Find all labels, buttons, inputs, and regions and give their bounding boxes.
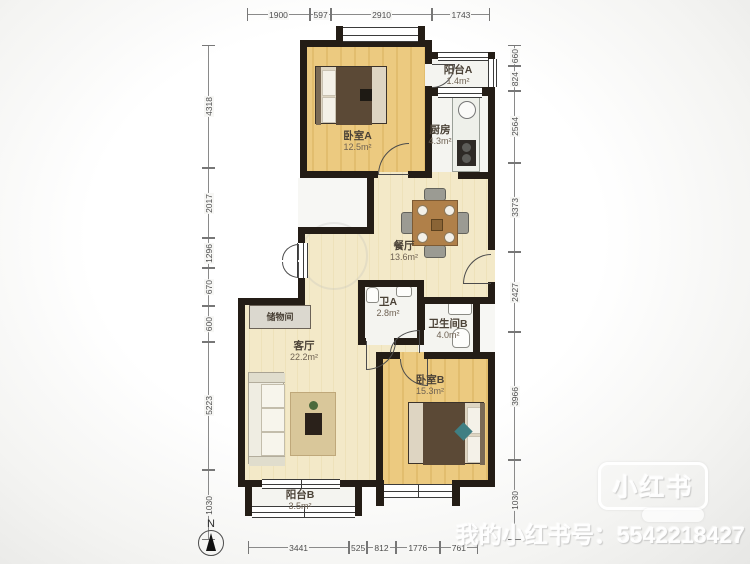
wall (376, 352, 383, 487)
wall (425, 87, 438, 96)
living-balcony-b-door (262, 479, 340, 489)
room-name: 阳台B (268, 489, 332, 501)
room-label-balcony-b: 阳台B 3.5m² (268, 489, 332, 511)
wall (473, 297, 495, 304)
room-area: 13.6m² (372, 252, 436, 262)
bed-a-tray (360, 89, 372, 101)
dimension-line-right: 660 824 2564 3373 2427 3966 1030 (508, 45, 521, 540)
north-label: N (198, 518, 224, 530)
sofa (248, 372, 284, 464)
room-label-kitchen: 厨房 4.3m² (414, 124, 466, 146)
room-name: 阳台A (427, 64, 489, 76)
dimension-segment: 1900 (247, 8, 310, 21)
room-name: 餐厅 (372, 240, 436, 252)
dimension-segment: 1776 (396, 541, 440, 554)
dimension-segment: 3966 (508, 332, 521, 460)
wall (355, 480, 362, 516)
wall (358, 338, 366, 345)
dimension-segment: 812 (367, 541, 396, 554)
wall (418, 26, 425, 47)
burner (462, 154, 471, 163)
dimension-segment: 824 (508, 66, 521, 90)
wall (424, 352, 495, 359)
wall (376, 480, 384, 506)
bed-a-headboard (316, 67, 321, 125)
dimension-label: 525 (350, 543, 366, 553)
plant (309, 401, 318, 410)
wall (488, 352, 495, 487)
dimension-label: 3373 (510, 197, 520, 218)
dimension-label: 5223 (204, 395, 214, 416)
wall (238, 480, 262, 487)
room-label-bath-b: 卫生间B 4.0m² (420, 318, 476, 340)
wall (300, 40, 307, 178)
wall (482, 87, 495, 96)
dimension-line-bottom: 3441 525 812 1776 761 (248, 541, 478, 554)
dimension-segment: 670 (202, 268, 215, 306)
room-area: 22.2m² (272, 352, 336, 362)
dimension-label: 1743 (450, 10, 471, 20)
bedroom-b-bay-window (384, 484, 452, 498)
bay-window-bedroom-a (343, 27, 418, 42)
balcony-a-kitchen-window (438, 87, 482, 98)
wall (245, 298, 305, 305)
room-label-bedroom-b: 卧室B 15.3m² (398, 374, 462, 396)
dimension-label: 670 (204, 279, 214, 295)
dimension-segment: 2564 (508, 91, 521, 163)
dimension-label: 3441 (288, 543, 309, 553)
bed-b-pillows (467, 436, 481, 463)
room-name: 厨房 (414, 124, 466, 136)
room-label-bath-a: 卫A 2.8m² (360, 296, 416, 318)
room-name: 储物间 (251, 311, 309, 323)
wall (418, 297, 480, 304)
dimension-segment: 2910 (331, 8, 432, 21)
dimension-label: 824 (510, 71, 520, 87)
dimension-segment: 4318 (202, 45, 215, 168)
room-name: 卫生间B (420, 318, 476, 330)
plate (444, 232, 455, 243)
window-mullion (301, 480, 302, 488)
balcony-a-top-window (438, 52, 488, 61)
north-indicator: N (198, 518, 224, 556)
bed-a-pillows (322, 70, 336, 96)
bed-b-headboard (480, 403, 485, 465)
north-arrow-icon (206, 533, 216, 551)
dimension-segment: 597 (310, 8, 331, 21)
dimension-segment: 600 (202, 306, 215, 342)
dimension-segment: 3441 (248, 541, 349, 554)
dimension-label: 1030 (510, 490, 520, 511)
room-name: 卧室A (310, 130, 405, 142)
dimension-segment: 1296 (202, 238, 215, 267)
room-area: 15.3m² (398, 386, 462, 396)
wall (460, 480, 495, 487)
compass-circle-icon (198, 530, 224, 556)
wall (298, 234, 305, 243)
sofa-cushion (261, 408, 285, 432)
kitchen-sink (458, 101, 476, 119)
wall (358, 280, 424, 287)
room-label-storage: 储物间 (251, 311, 309, 323)
room-area: 1.4m² (427, 76, 489, 86)
dimension-line-top: 1900 597 2910 1743 (247, 8, 490, 21)
xiaohongshu-logo-text: 小红书 (612, 468, 693, 504)
dimension-label: 4318 (204, 96, 214, 117)
room-name: 卧室B (398, 374, 462, 386)
dimension-segment: 525 (349, 541, 367, 554)
dimension-segment: 3373 (508, 163, 521, 252)
wall (300, 171, 378, 178)
coffee-table (305, 413, 322, 435)
floorplan-screenshot: 卧室A 12.5m² 阳台A 1.4m² 厨房 4.3m² 餐厅 13.6m² … (0, 0, 750, 564)
room-area: 12.5m² (310, 142, 405, 152)
room-label-living: 客厅 22.2m² (272, 340, 336, 362)
dimension-label: 1776 (407, 543, 428, 553)
wall (458, 172, 495, 179)
bed-a (315, 66, 387, 124)
room-area: 4.3m² (414, 136, 466, 146)
sofa-armrest (249, 373, 285, 383)
dimension-segment: 660 (508, 45, 521, 66)
dimension-label: 3966 (510, 386, 520, 407)
room-label-bedroom-a: 卧室A 12.5m² (310, 130, 405, 152)
room-area: 4.0m² (420, 330, 476, 340)
dimension-segment: 5223 (202, 342, 215, 470)
room-area: 2.8m² (360, 308, 416, 318)
room-name: 卫A (360, 296, 416, 308)
exterior-east-of-bath-b (480, 304, 495, 352)
room-name: 客厅 (272, 340, 336, 352)
wall (298, 227, 374, 234)
plate (444, 205, 455, 216)
dimension-label: 1900 (268, 10, 289, 20)
bed-b (408, 402, 484, 464)
dimension-label: 1030 (204, 495, 214, 516)
dimension-label: 2910 (371, 10, 392, 20)
xiaohongshu-logo-watermark: 小红书 (598, 462, 708, 510)
wall (452, 480, 460, 506)
dimension-label: 2427 (510, 282, 520, 303)
sofa-cushion (261, 432, 285, 456)
dimension-label: 812 (373, 543, 389, 553)
rug (290, 392, 336, 456)
dimension-label: 2564 (510, 116, 520, 137)
room-label-balcony-a: 阳台A 1.4m² (427, 64, 489, 86)
window-mullion (418, 485, 419, 497)
bed-a-pillows (322, 97, 336, 123)
dimension-label: 1296 (204, 243, 214, 264)
sofa-armrest (249, 456, 285, 466)
room-area: 3.5m² (268, 501, 332, 511)
xiaohongshu-id-watermark: 我的小红书号：5542218427 (456, 516, 745, 550)
dimension-line-left: 4318 2017 1296 670 600 5223 1030 (202, 45, 215, 540)
dimension-label: 597 (313, 10, 329, 20)
room-label-dining: 餐厅 13.6m² (372, 240, 436, 262)
wall (336, 26, 343, 47)
wall (367, 178, 374, 234)
dimension-segment: 2427 (508, 252, 521, 332)
wall (238, 298, 245, 487)
centerpiece (431, 219, 443, 231)
wall (245, 506, 252, 516)
dimension-label: 2017 (204, 193, 214, 214)
dimension-segment: 2017 (202, 168, 215, 238)
dimension-label: 600 (204, 316, 214, 332)
plate (417, 205, 428, 216)
dimension-label: 660 (510, 48, 520, 64)
balcony-a-side-window (488, 59, 497, 87)
dimension-segment: 1743 (432, 8, 490, 21)
sofa-cushion (261, 384, 285, 408)
casement-leaf-upper (282, 244, 299, 260)
casement-leaf-lower (282, 262, 299, 278)
wall (425, 52, 438, 59)
